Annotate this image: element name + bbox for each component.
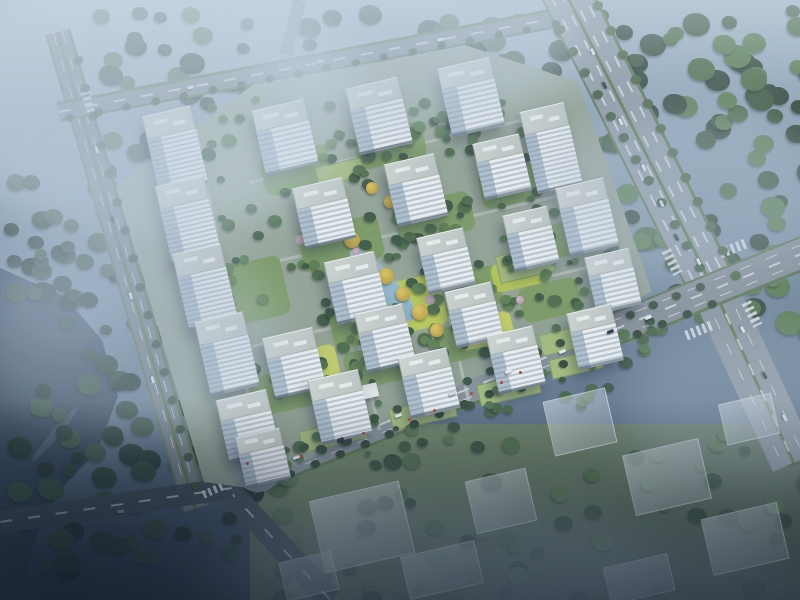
courtyard-trees	[443, 135, 451, 142]
courtyard-trees	[240, 255, 250, 263]
forest-top-band	[616, 25, 633, 39]
forest-right-band	[741, 68, 768, 91]
street-tree	[626, 311, 635, 319]
street-tree	[556, 339, 565, 347]
golden-tree	[412, 304, 428, 320]
edge-trees	[471, 441, 485, 453]
courtyard-trees	[382, 151, 393, 160]
roof-unit	[515, 337, 528, 344]
forest-shore	[63, 464, 76, 475]
lawn-trees-southeast	[399, 441, 412, 452]
edge-trees	[559, 377, 566, 383]
forest-right-band	[786, 5, 800, 17]
street-tree	[633, 330, 642, 338]
forest-shore	[38, 478, 64, 500]
forest-shore	[175, 527, 192, 541]
street-tree	[460, 400, 469, 408]
edge-trees	[316, 445, 327, 454]
roof-unit	[548, 116, 560, 122]
roof-unit	[293, 340, 307, 347]
roof-unit	[496, 337, 510, 344]
roof-unit	[594, 315, 606, 321]
edge-trees	[444, 435, 454, 444]
forest-right-band	[683, 13, 710, 36]
storefront-accent	[519, 371, 522, 374]
courtyard-trees	[540, 274, 548, 281]
blossom-tree	[516, 296, 524, 304]
courtyard-trees	[462, 196, 472, 205]
lawn-trees-southeast	[584, 468, 600, 482]
forest-shore	[38, 462, 53, 475]
roof-unit	[247, 402, 261, 409]
forest-right-band	[713, 35, 736, 54]
street-tree	[336, 450, 345, 458]
storefront-accent	[470, 392, 473, 395]
street-tree	[385, 430, 394, 438]
street-tree	[683, 310, 692, 318]
courtyard-trees	[404, 232, 416, 242]
forest-right-band	[722, 16, 737, 29]
edge-trees	[618, 329, 630, 339]
courtyard-trees	[474, 260, 483, 268]
courtyard-trees	[515, 310, 524, 317]
courtyard-trees	[425, 224, 436, 234]
forest-shore	[109, 537, 130, 555]
roof-unit	[529, 114, 543, 121]
roof-unit	[355, 264, 369, 271]
courtyard-trees	[574, 301, 583, 309]
forest-top-band	[640, 34, 666, 56]
courtyard-trees	[312, 270, 324, 280]
roof-unit	[473, 293, 486, 300]
storefront-accent	[362, 432, 365, 435]
roof-unit	[384, 315, 397, 322]
courtyard-trees	[361, 170, 369, 177]
forest-shore	[71, 452, 84, 463]
street-tree	[631, 75, 641, 84]
forest-shore	[49, 529, 74, 550]
forest-right-band	[663, 33, 678, 46]
courtyard-trees	[302, 263, 309, 269]
roof-unit	[454, 293, 468, 300]
blossom-tree	[425, 295, 435, 305]
storefront-accent	[300, 455, 303, 458]
aerial-render-scene	[0, 0, 800, 600]
courtyard-trees	[427, 304, 440, 315]
street-tree	[658, 320, 667, 328]
scene-layers	[0, 0, 800, 600]
courtyard-trees	[253, 231, 264, 240]
street-tree	[410, 420, 419, 428]
forest-right-band	[748, 88, 775, 111]
courtyard-trees	[337, 342, 350, 353]
courtyard-trees	[527, 196, 534, 202]
edge-trees	[375, 400, 381, 405]
courtyard-trees	[359, 240, 372, 251]
courtyard-trees	[268, 215, 282, 227]
roof-unit	[395, 165, 411, 172]
street-tree	[300, 443, 309, 451]
courtyard-trees	[364, 212, 376, 222]
courtyard-trees	[440, 223, 449, 230]
storefront-accent	[433, 409, 436, 412]
forest-right-band	[688, 58, 715, 81]
lawn-trees-southeast	[384, 454, 402, 470]
forest-shore	[54, 553, 79, 575]
forest-shore	[131, 461, 156, 483]
courtyard-trees	[287, 263, 296, 271]
courtyard-trees	[457, 212, 464, 218]
golden-tree	[396, 287, 410, 301]
lawn-trees-southeast	[403, 453, 422, 469]
forest-shore	[38, 562, 53, 575]
golden-tree	[430, 323, 444, 337]
forest-right-band	[787, 17, 800, 37]
edge-trees	[370, 460, 381, 469]
forest-shore	[200, 531, 214, 543]
edge-trees	[448, 422, 460, 432]
roof-unit	[512, 217, 526, 224]
lawn-trees-southeast	[585, 505, 602, 519]
roof-unit	[445, 239, 458, 246]
street-tree	[606, 26, 616, 35]
courtyard-trees	[393, 253, 400, 259]
street-tree	[184, 453, 193, 461]
street-tree	[192, 482, 201, 490]
forest-shore	[142, 551, 158, 565]
roof-unit	[415, 166, 429, 173]
forest-shore	[144, 520, 166, 539]
roof-unit	[501, 145, 514, 152]
courtyard-trees	[548, 295, 562, 307]
roof-unit	[530, 217, 542, 223]
lawn-trees-southeast	[551, 486, 570, 502]
roof-unit	[365, 315, 380, 322]
roof-unit	[426, 239, 440, 246]
street-tree	[593, 90, 603, 99]
lawn-trees-southeast	[417, 438, 428, 448]
courtyard-trees	[552, 324, 561, 332]
roof-unit	[482, 145, 496, 152]
courtyard-trees	[572, 258, 578, 263]
lawn-trees-southeast	[502, 437, 520, 453]
street-tree	[311, 460, 320, 468]
street-tree	[559, 360, 568, 368]
edge-trees	[647, 326, 657, 335]
courtyard-trees	[347, 335, 355, 342]
golden-tree	[366, 182, 378, 194]
courtyard-trees	[535, 293, 545, 301]
roof-unit	[263, 438, 275, 444]
roof-unit	[576, 315, 590, 322]
street-tree	[708, 300, 717, 308]
courtyard-trees	[321, 298, 332, 307]
street-tree	[463, 377, 472, 385]
street-tree	[361, 440, 370, 448]
roof-unit	[323, 190, 337, 197]
roof-unit	[318, 381, 334, 388]
forest-right-band	[790, 60, 800, 74]
roof-unit	[408, 359, 423, 366]
forest-shore	[85, 443, 107, 462]
street-tree	[593, 1, 603, 10]
forest-shore	[8, 482, 32, 502]
forest-right-band	[791, 100, 800, 114]
storefront-accent	[408, 418, 411, 421]
forest-shore	[92, 467, 117, 489]
courtyard-trees	[580, 287, 589, 295]
courtyard-trees	[445, 148, 455, 156]
storefront-accent	[246, 462, 249, 465]
roof-unit	[428, 359, 441, 366]
street-tree	[485, 390, 494, 398]
storefront-accent	[500, 381, 503, 384]
roof-unit	[245, 438, 259, 445]
edge-trees	[503, 405, 513, 413]
roof-unit	[335, 263, 351, 270]
courtyard-trees	[412, 283, 426, 295]
courtyard-trees	[575, 277, 583, 284]
roof-unit	[339, 382, 353, 389]
